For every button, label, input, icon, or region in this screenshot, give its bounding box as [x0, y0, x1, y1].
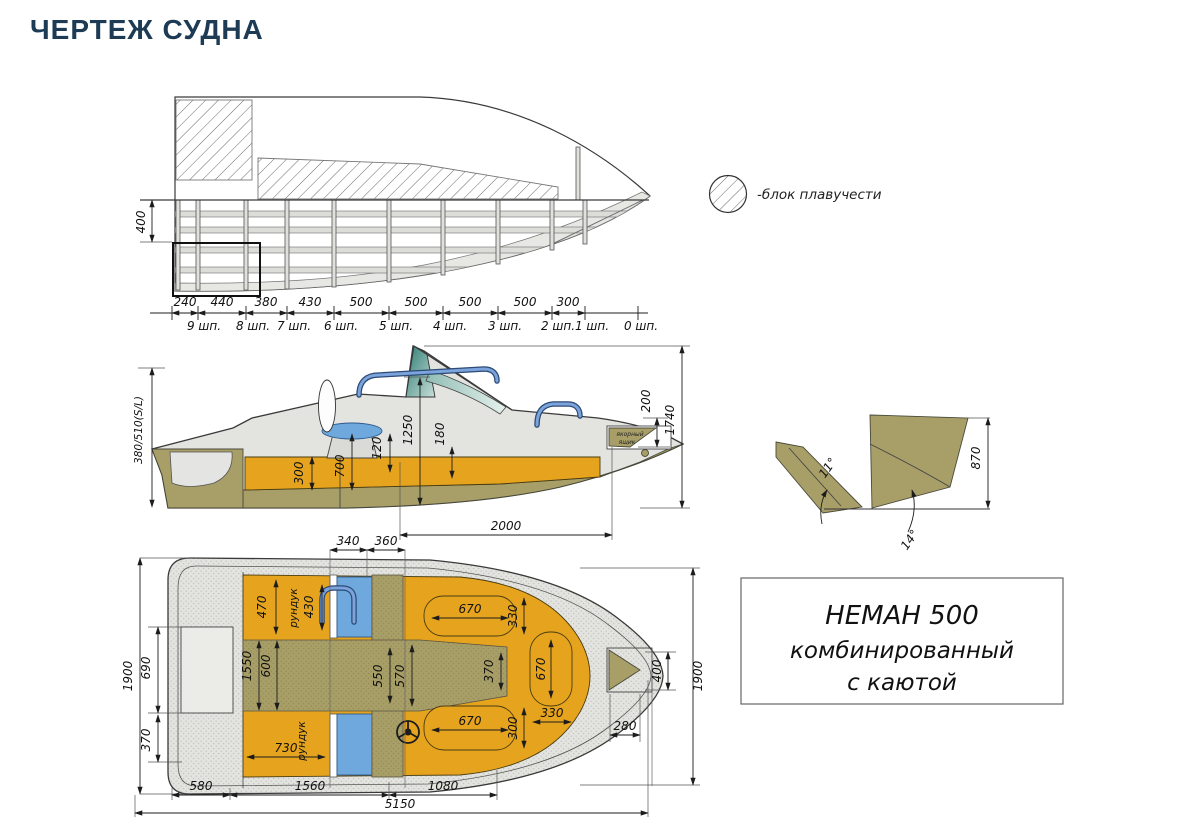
dim-overall-length: 5150	[385, 797, 416, 811]
dim-walkway-370: 370	[482, 659, 496, 682]
buoyancy-legend: -блок плавучести	[710, 176, 882, 213]
dim-profile-400: 400	[134, 210, 148, 233]
dim-table-height: 700	[333, 454, 347, 477]
station-label: 4 шп.	[433, 319, 467, 333]
dim-angle-bottom: 14°	[898, 527, 922, 552]
dim-beam-right: 1900	[691, 660, 705, 691]
dim-walkway-1550: 1550	[240, 650, 254, 681]
model-title-block: НЕМАН 500 комбинированный с каютой	[741, 578, 1063, 704]
bow-eye	[642, 450, 649, 457]
stern-well	[181, 627, 233, 713]
station-label: 3 шп.	[488, 319, 522, 333]
station-label: 5 шп.	[379, 319, 413, 333]
side-backrest	[319, 380, 336, 432]
transom-wing	[776, 442, 862, 513]
dim-seat-top-length: 670	[459, 602, 482, 616]
dim-walkway-600: 600	[259, 654, 273, 677]
dim-seat-height: 180	[433, 422, 447, 445]
dim-well-offset: 370	[139, 728, 153, 751]
dim-seat-top-width: 330	[506, 604, 520, 627]
side-elevation-view: якорный ящик 380/510(S/L) 300 700 120 12…	[133, 346, 690, 540]
dim-locker-top: 470	[255, 595, 269, 618]
dim-gap: 120	[370, 436, 384, 459]
buoyancy-block-deck	[258, 158, 558, 199]
station-label: 2 шп.	[541, 319, 575, 333]
model-name: НЕМАН 500	[825, 601, 979, 631]
dim-cockpit-section: 1560	[295, 779, 326, 793]
dim-well-length: 690	[139, 656, 153, 679]
dim-seat-bow-length: 670	[534, 657, 548, 680]
dim-station: 300	[557, 295, 580, 309]
dim-locker-top-len: 430	[302, 595, 316, 618]
station-label: 9 шп.	[187, 319, 221, 333]
model-type: комбинированный	[790, 638, 1014, 664]
dim-walkway-570: 570	[393, 664, 407, 687]
drawing-page: ЧЕРТЕЖ СУДНА	[0, 0, 1201, 829]
locker-label: рундук	[288, 588, 300, 629]
station-dim-chain: 240 440 380 430 500 500 500 500 300 9 шп…	[150, 295, 658, 333]
dim-overall-height: 1740	[663, 404, 677, 435]
dim-bow-locker-width: 280	[614, 719, 637, 733]
ship-drawing-canvas: 400 240 440 380	[0, 0, 1201, 829]
transom-section-view: 870 11° 14°	[776, 415, 990, 552]
dim-bow-section: 1080	[428, 779, 459, 793]
station-label: 6 шп.	[324, 319, 358, 333]
plan-view: 340 360 1900 690 370 470 рундук 430 730 …	[121, 534, 705, 817]
dim-station: 440	[211, 295, 234, 309]
buoyancy-legend-label: -блок плавучести	[757, 187, 882, 203]
dim-cockpit-length: 2000	[491, 519, 522, 533]
dim-station: 500	[459, 295, 482, 309]
dim-station: 240	[174, 295, 197, 309]
buoyancy-block-stern	[176, 100, 252, 180]
station-label: 0 шп.	[624, 319, 658, 333]
dim-walkway-550: 550	[371, 664, 385, 687]
dim-locker-bottom: 730	[275, 741, 298, 755]
model-cabin: с каютой	[847, 670, 957, 696]
dim-walkway-col: 360	[375, 534, 398, 548]
dim-transom-height: 870	[969, 446, 983, 469]
dim-freeboard: 380/510(S/L)	[133, 396, 145, 464]
dim-seat-col: 340	[337, 534, 360, 548]
buoyancy-legend-icon	[710, 176, 747, 213]
seat-cushion-starboard	[337, 714, 372, 775]
dim-stern-section: 580	[190, 779, 213, 793]
structural-profile-view: 400 240 440 380	[134, 97, 658, 333]
dim-station: 500	[514, 295, 537, 309]
station-label: 8 шп.	[236, 319, 270, 333]
dim-station: 500	[350, 295, 373, 309]
dim-station: 380	[255, 295, 278, 309]
dim-station: 430	[299, 295, 322, 309]
dim-cabin-height: 1250	[401, 414, 415, 445]
dim-station: 500	[405, 295, 428, 309]
bow-seat-starboard	[424, 706, 516, 750]
dim-seat-bottom-width: 300	[506, 716, 520, 739]
anchor-locker-label: якорный	[616, 431, 643, 438]
dim-seat-bottom-length: 670	[459, 714, 482, 728]
locker-label: рундук	[296, 721, 308, 762]
station-label: 7 шп.	[277, 319, 311, 333]
station-label: 1 шп.	[575, 319, 609, 333]
dim-backrest: 300	[292, 461, 306, 484]
dim-beam-left: 1900	[121, 660, 135, 691]
transom-panel	[870, 415, 968, 508]
anchor-locker-label: ящик	[619, 439, 636, 446]
dim-bow-locker: 200	[639, 389, 653, 412]
dim-bow-width: 400	[650, 659, 664, 682]
dim-seat-bow-width: 330	[541, 706, 564, 720]
